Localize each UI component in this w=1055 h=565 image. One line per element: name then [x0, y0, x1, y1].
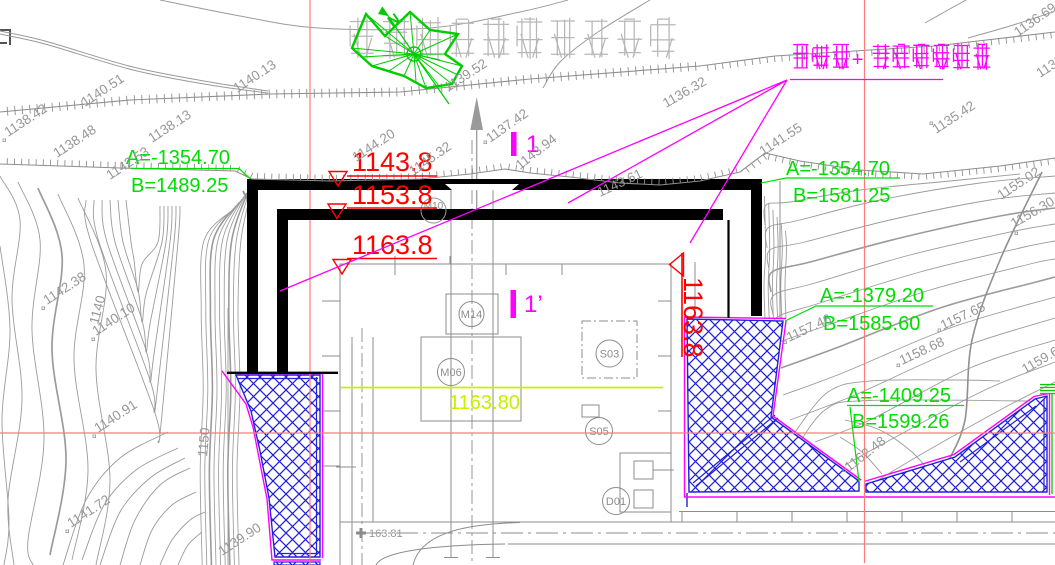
svg-text:+: + — [852, 49, 864, 71]
svg-text:B=1489.25: B=1489.25 — [131, 175, 228, 197]
svg-text:B=1599.26: B=1599.26 — [852, 411, 949, 433]
svg-text:1’: 1’ — [524, 291, 543, 318]
svg-text:S05: S05 — [589, 426, 609, 438]
svg-text:B=1585.60: B=1585.60 — [823, 313, 920, 335]
svg-text:A=-1379.20: A=-1379.20 — [820, 285, 924, 307]
svg-text:S03: S03 — [600, 349, 620, 361]
svg-text:1163.80: 1163.80 — [449, 392, 520, 414]
svg-text:1150: 1150 — [195, 427, 212, 457]
svg-text:1163.8: 1163.8 — [678, 277, 708, 358]
svg-text:A=-1354.70: A=-1354.70 — [786, 158, 890, 180]
svg-text:M06: M06 — [440, 367, 461, 379]
svg-text:D01: D01 — [606, 496, 626, 508]
svg-text:A=-1409.25: A=-1409.25 — [847, 385, 951, 407]
svg-text:B=1581.25: B=1581.25 — [793, 185, 890, 207]
svg-text:163.81: 163.81 — [369, 528, 403, 540]
svg-text:1153.8: 1153.8 — [352, 180, 433, 210]
svg-text:M14: M14 — [461, 309, 482, 321]
